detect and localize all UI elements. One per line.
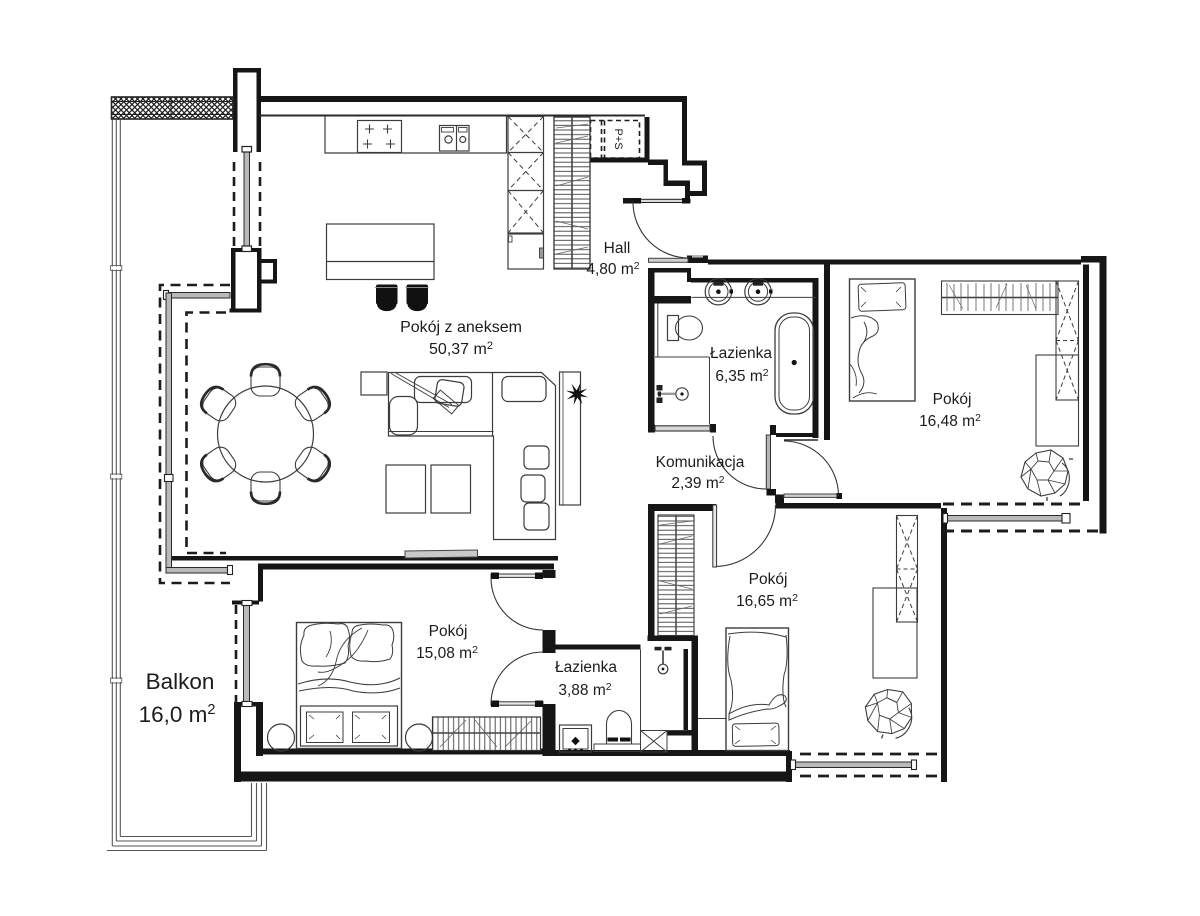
svg-text:3,88 m2: 3,88 m2 — [558, 681, 611, 699]
svg-text:Pokój: Pokój — [933, 391, 972, 408]
svg-text:Łazienka: Łazienka — [710, 345, 772, 362]
svg-text:15,08 m2: 15,08 m2 — [416, 644, 478, 662]
svg-text:Pokój: Pokój — [429, 623, 468, 640]
svg-text:6,35 m2: 6,35 m2 — [715, 367, 768, 385]
svg-text:Łazienka: Łazienka — [555, 659, 617, 676]
svg-text:P+S: P+S — [612, 128, 624, 149]
svg-text:Hall: Hall — [604, 240, 631, 257]
svg-text:4,80 m2: 4,80 m2 — [586, 260, 639, 278]
svg-text:Komunikacja: Komunikacja — [656, 454, 745, 471]
svg-text:Balkon: Balkon — [146, 669, 215, 694]
svg-text:16,48 m2: 16,48 m2 — [919, 412, 981, 430]
svg-text:2,39 m2: 2,39 m2 — [671, 474, 724, 492]
svg-text:16,0 m2: 16,0 m2 — [139, 702, 216, 727]
svg-text:16,65 m2: 16,65 m2 — [736, 592, 798, 610]
svg-text:Pokój z aneksem: Pokój z aneksem — [400, 319, 522, 336]
svg-text:50,37 m2: 50,37 m2 — [429, 340, 493, 358]
svg-text:Pokój: Pokój — [749, 571, 788, 588]
